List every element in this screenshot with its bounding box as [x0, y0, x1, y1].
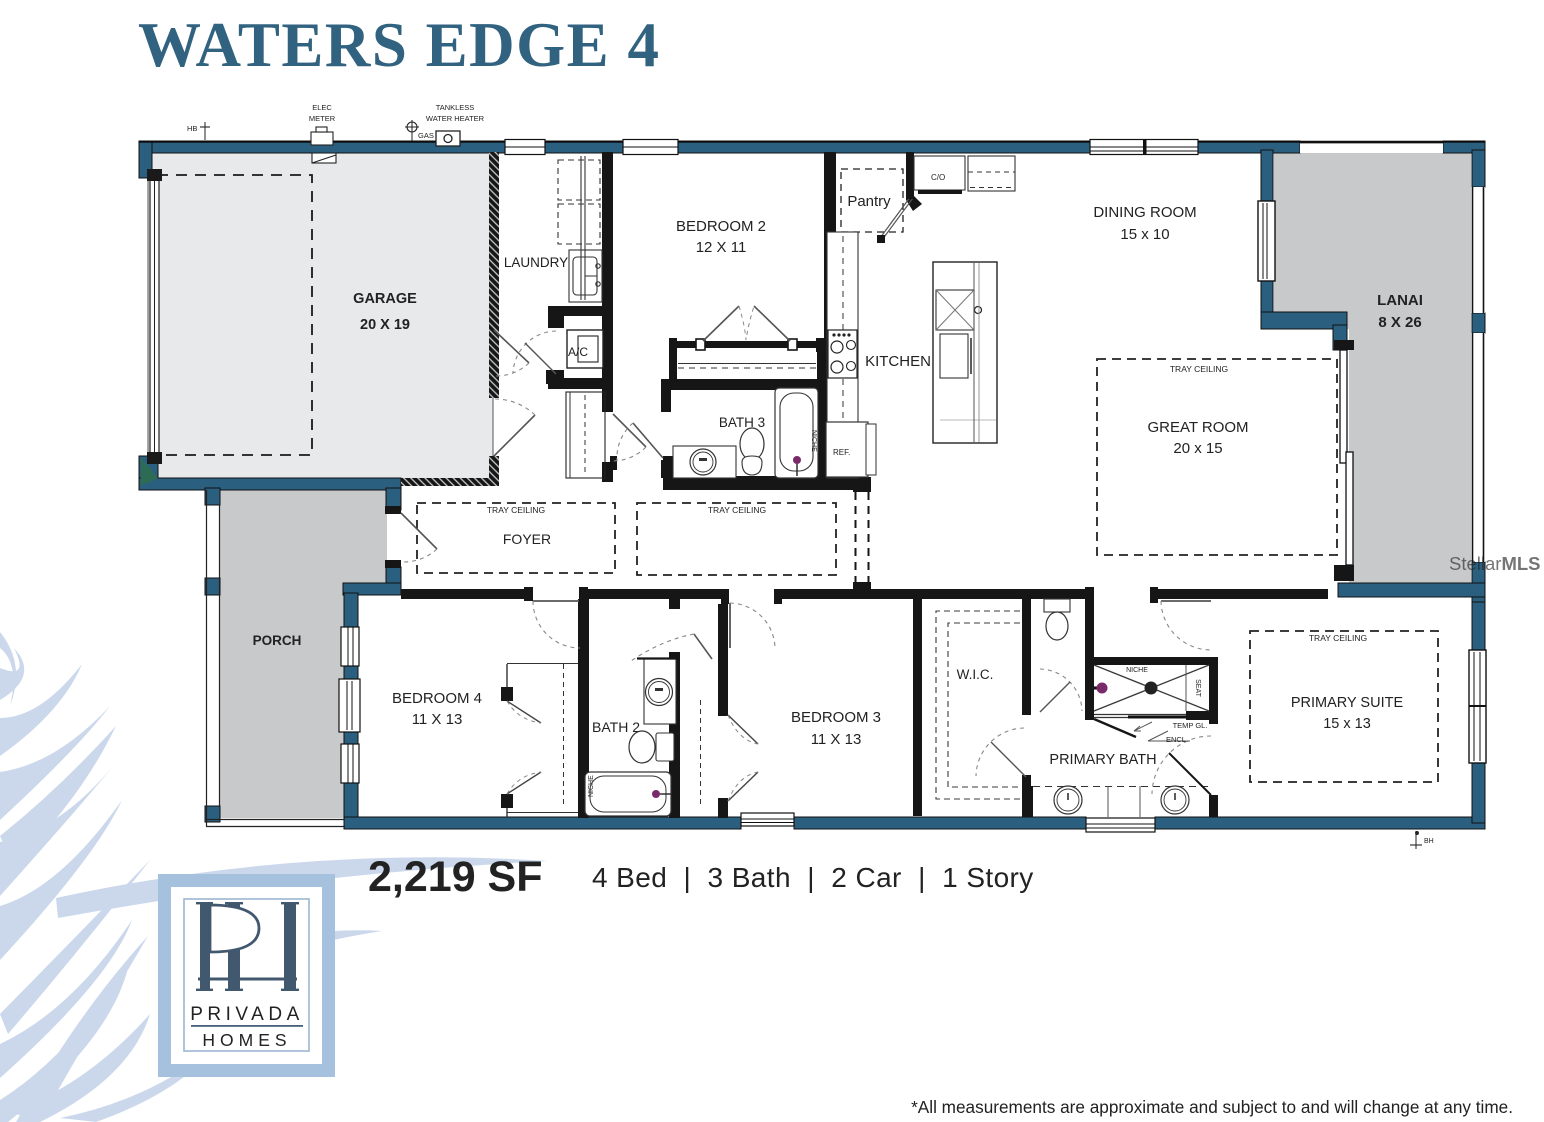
svg-text:TANKLESS: TANKLESS [436, 103, 475, 112]
svg-text:StellarMLS: StellarMLS [1449, 553, 1541, 574]
svg-text:TRAY CEILING: TRAY CEILING [1309, 633, 1367, 643]
svg-text:GARAGE: GARAGE [353, 291, 417, 307]
svg-text:GREAT ROOM: GREAT ROOM [1147, 419, 1248, 436]
svg-text:2,219 SF: 2,219 SF [368, 853, 543, 901]
svg-text:WATERS EDGE 4: WATERS EDGE 4 [138, 10, 660, 80]
svg-text:SEAT: SEAT [1194, 679, 1201, 697]
svg-text:BATH 3: BATH 3 [719, 415, 765, 430]
svg-text:TRAY CEILING: TRAY CEILING [1170, 364, 1228, 374]
svg-text:PRIMARY SUITE: PRIMARY SUITE [1291, 695, 1404, 711]
svg-text:REF.: REF. [833, 448, 850, 457]
svg-text:LANAI: LANAI [1377, 292, 1423, 309]
svg-text:NICHE: NICHE [1126, 667, 1148, 674]
svg-text:LAUNDRY: LAUNDRY [504, 255, 568, 270]
svg-text:NICHE: NICHE [810, 430, 817, 452]
svg-text:HOMES: HOMES [202, 1030, 291, 1050]
svg-text:PRIMARY BATH: PRIMARY BATH [1049, 752, 1156, 768]
svg-text:*All measurements are approxim: *All measurements are approximate and su… [911, 1097, 1513, 1117]
svg-text:Pantry: Pantry [847, 193, 891, 210]
svg-text:METER: METER [309, 114, 336, 123]
svg-text:TRAY CEILING: TRAY CEILING [708, 505, 766, 515]
svg-text:20 x 15: 20 x 15 [1173, 440, 1222, 457]
svg-text:KITCHEN: KITCHEN [865, 353, 931, 370]
svg-text:HB: HB [187, 124, 197, 133]
svg-text:4 Bed | 3 Bath | 2 Car |: 4 Bed | 3 Bath | 2 Car | 1 Story [592, 862, 1034, 893]
svg-text:NICHE: NICHE [588, 775, 595, 797]
svg-text:GAS: GAS [418, 131, 434, 140]
svg-text:PRIVADA: PRIVADA [190, 1004, 304, 1025]
svg-text:ENCL.: ENCL. [1166, 735, 1188, 744]
svg-text:TEMP GL.: TEMP GL. [1173, 721, 1208, 730]
svg-text:15 x 13: 15 x 13 [1323, 716, 1371, 732]
svg-text:BH: BH [1424, 838, 1434, 845]
svg-text:W.I.C.: W.I.C. [957, 667, 994, 682]
svg-text:ELEC: ELEC [312, 103, 332, 112]
svg-text:WATER HEATER: WATER HEATER [426, 114, 485, 123]
svg-text:15 x 10: 15 x 10 [1120, 226, 1169, 243]
svg-text:C/O: C/O [931, 173, 945, 182]
svg-text:11 X 13: 11 X 13 [811, 731, 862, 748]
svg-text:11 X 13: 11 X 13 [412, 711, 463, 728]
svg-text:BEDROOM 3: BEDROOM 3 [791, 709, 881, 726]
svg-text:12 X 11: 12 X 11 [696, 239, 747, 256]
svg-text:FOYER: FOYER [503, 531, 551, 547]
svg-text:8 X 26: 8 X 26 [1378, 314, 1421, 331]
svg-text:20 X 19: 20 X 19 [360, 317, 410, 333]
svg-text:PORCH: PORCH [253, 633, 302, 648]
svg-text:BATH 2: BATH 2 [592, 719, 640, 735]
svg-text:BEDROOM 4: BEDROOM 4 [392, 690, 482, 707]
svg-text:TRAY CEILING: TRAY CEILING [487, 505, 545, 515]
svg-text:BEDROOM 2: BEDROOM 2 [676, 218, 766, 235]
svg-text:DINING ROOM: DINING ROOM [1093, 204, 1196, 221]
svg-text:A/C: A/C [568, 345, 588, 359]
